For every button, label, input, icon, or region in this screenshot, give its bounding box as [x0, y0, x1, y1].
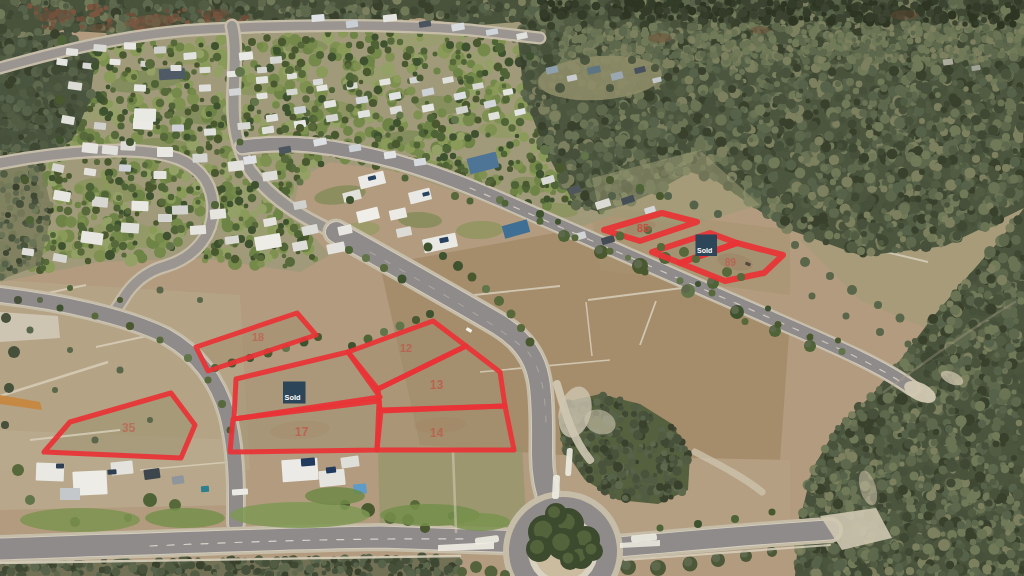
- svg-text:85: 85: [637, 222, 649, 234]
- svg-text:12: 12: [400, 342, 412, 354]
- svg-text:35: 35: [122, 421, 136, 435]
- svg-text:89: 89: [725, 257, 737, 268]
- svg-text:13: 13: [430, 378, 444, 392]
- svg-text:Sold: Sold: [697, 247, 712, 254]
- svg-text:14: 14: [430, 426, 444, 440]
- svg-text:18: 18: [252, 331, 264, 343]
- svg-text:Sold: Sold: [285, 393, 301, 402]
- svg-text:17: 17: [295, 425, 309, 439]
